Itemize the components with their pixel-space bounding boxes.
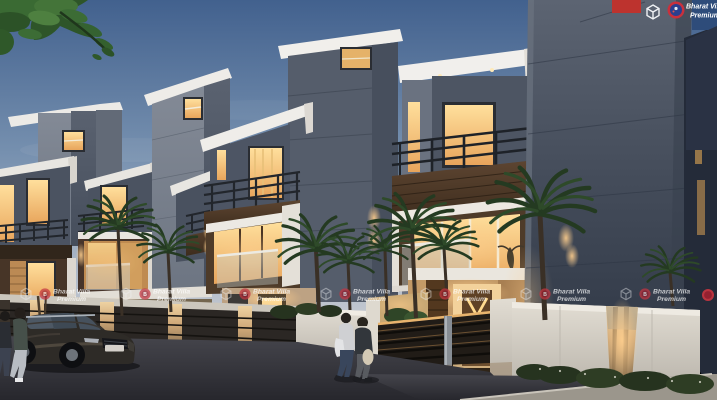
svg-text:Bharat Villa: Bharat Villa [686,4,717,11]
svg-text:Premium: Premium [690,13,717,20]
